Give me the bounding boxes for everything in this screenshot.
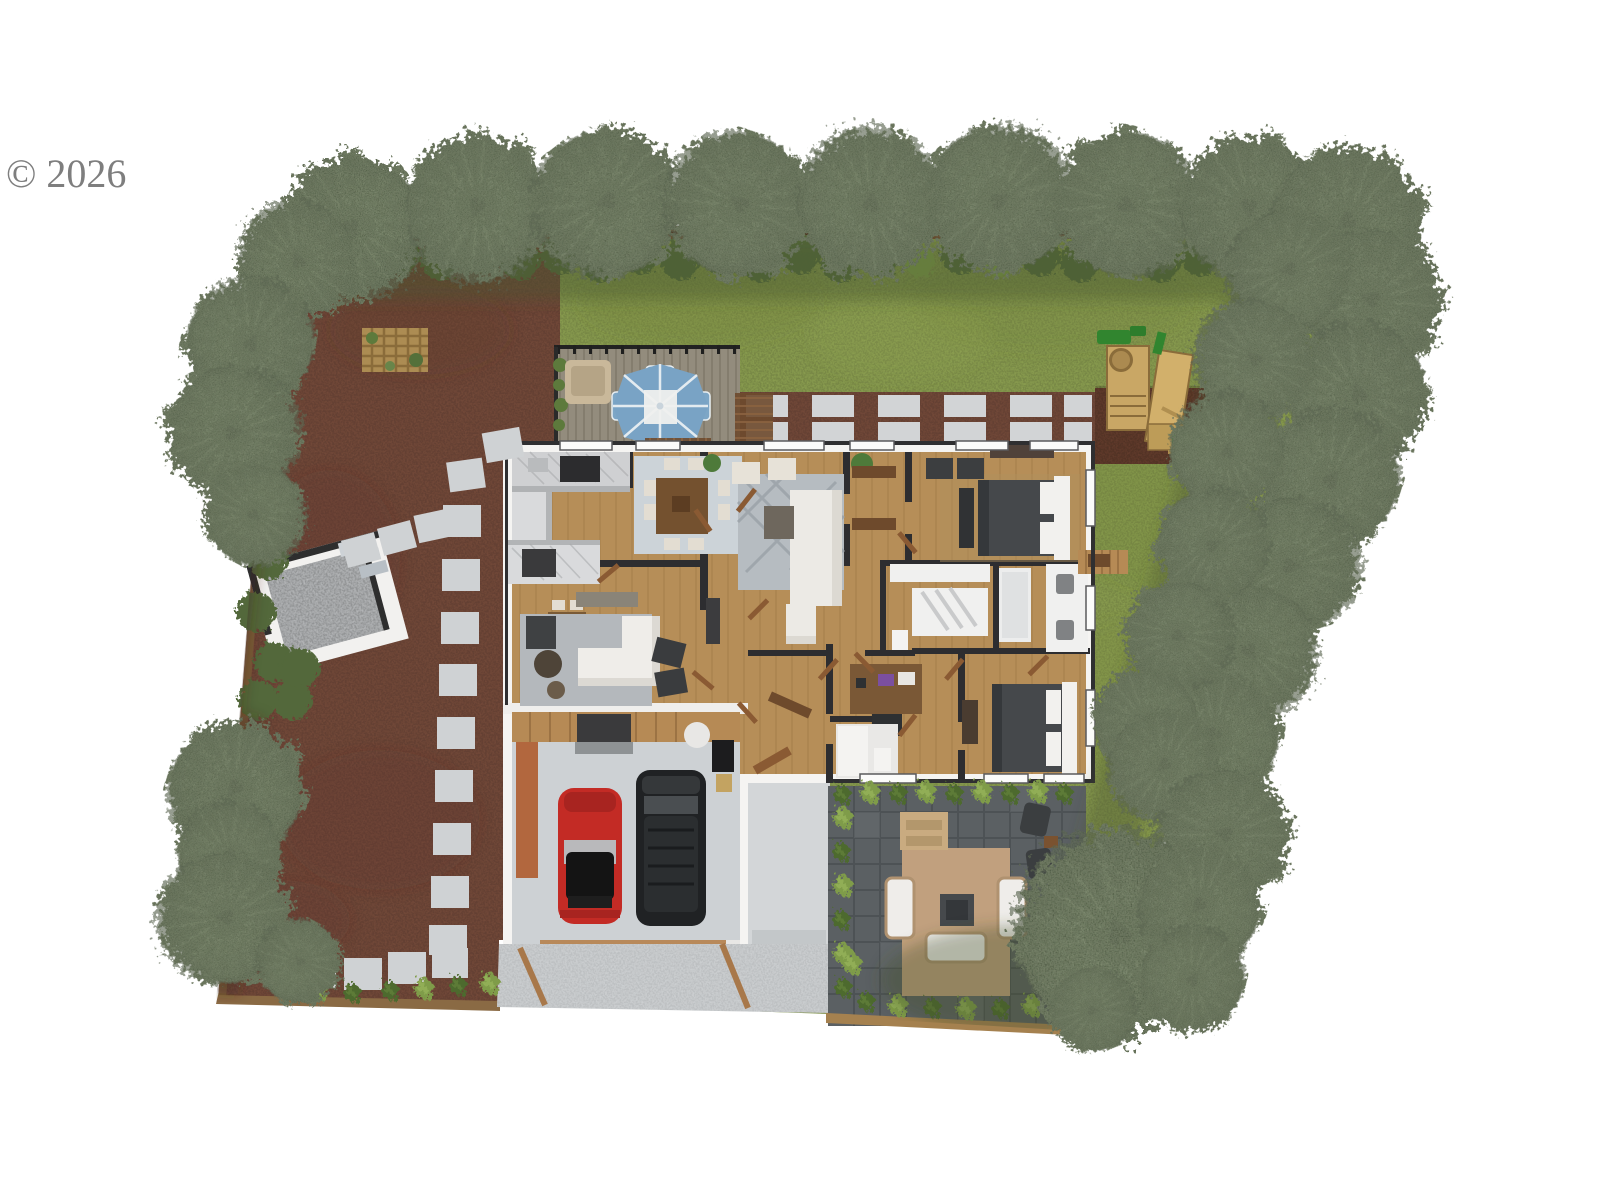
svg-text:© 2026: © 2026	[6, 151, 126, 196]
